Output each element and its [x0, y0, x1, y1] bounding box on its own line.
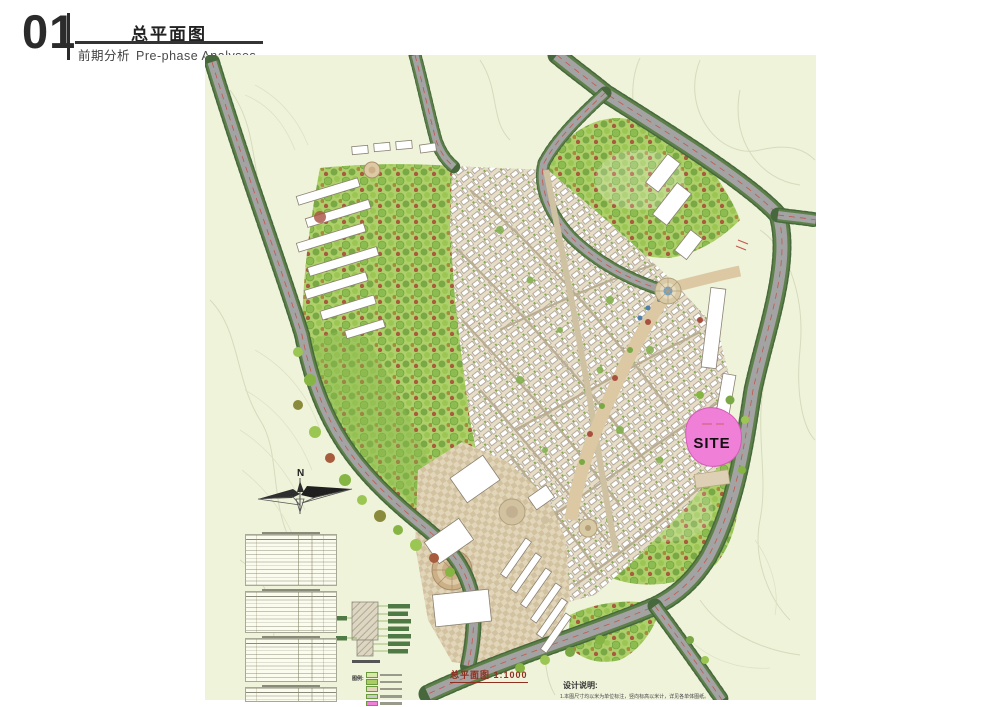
east-branch-road — [778, 215, 816, 220]
legend-title: 图例: — [352, 674, 364, 682]
subtitle-cn: 前期分析 — [78, 49, 130, 63]
indicator-tables — [245, 534, 337, 707]
plan-caption: 总平面图 1:1000 — [450, 668, 528, 683]
site-label: SITE — [693, 435, 730, 452]
north-label: N — [297, 468, 304, 479]
legend-item — [366, 679, 402, 685]
design-notes-line: 1.本图尺寸均以米为单位标注，竖向标高以米计，详见各单体图纸。 — [560, 692, 709, 700]
legend-item — [366, 701, 402, 707]
legend-item — [366, 694, 402, 700]
title-underline — [75, 41, 263, 44]
indicator-table-section — [245, 534, 337, 586]
header-divider — [67, 13, 70, 60]
slide-page: 01 总平面图 前期分析Pre-phase Analyses — [0, 0, 1000, 707]
indicator-table-section — [245, 687, 337, 702]
indicator-table-section — [245, 638, 337, 682]
legend-item — [366, 672, 402, 678]
legend-item — [366, 686, 402, 692]
indicator-table-section — [245, 591, 337, 633]
design-notes-title: 设计说明: — [563, 680, 598, 691]
